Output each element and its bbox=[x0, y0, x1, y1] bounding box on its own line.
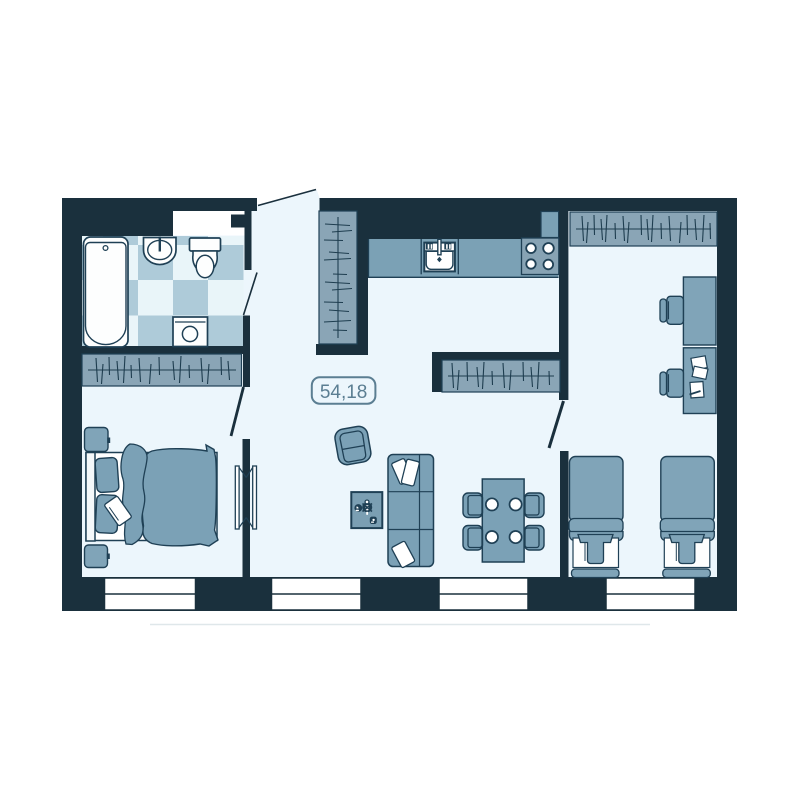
svg-text:54,18: 54,18 bbox=[320, 382, 368, 403]
